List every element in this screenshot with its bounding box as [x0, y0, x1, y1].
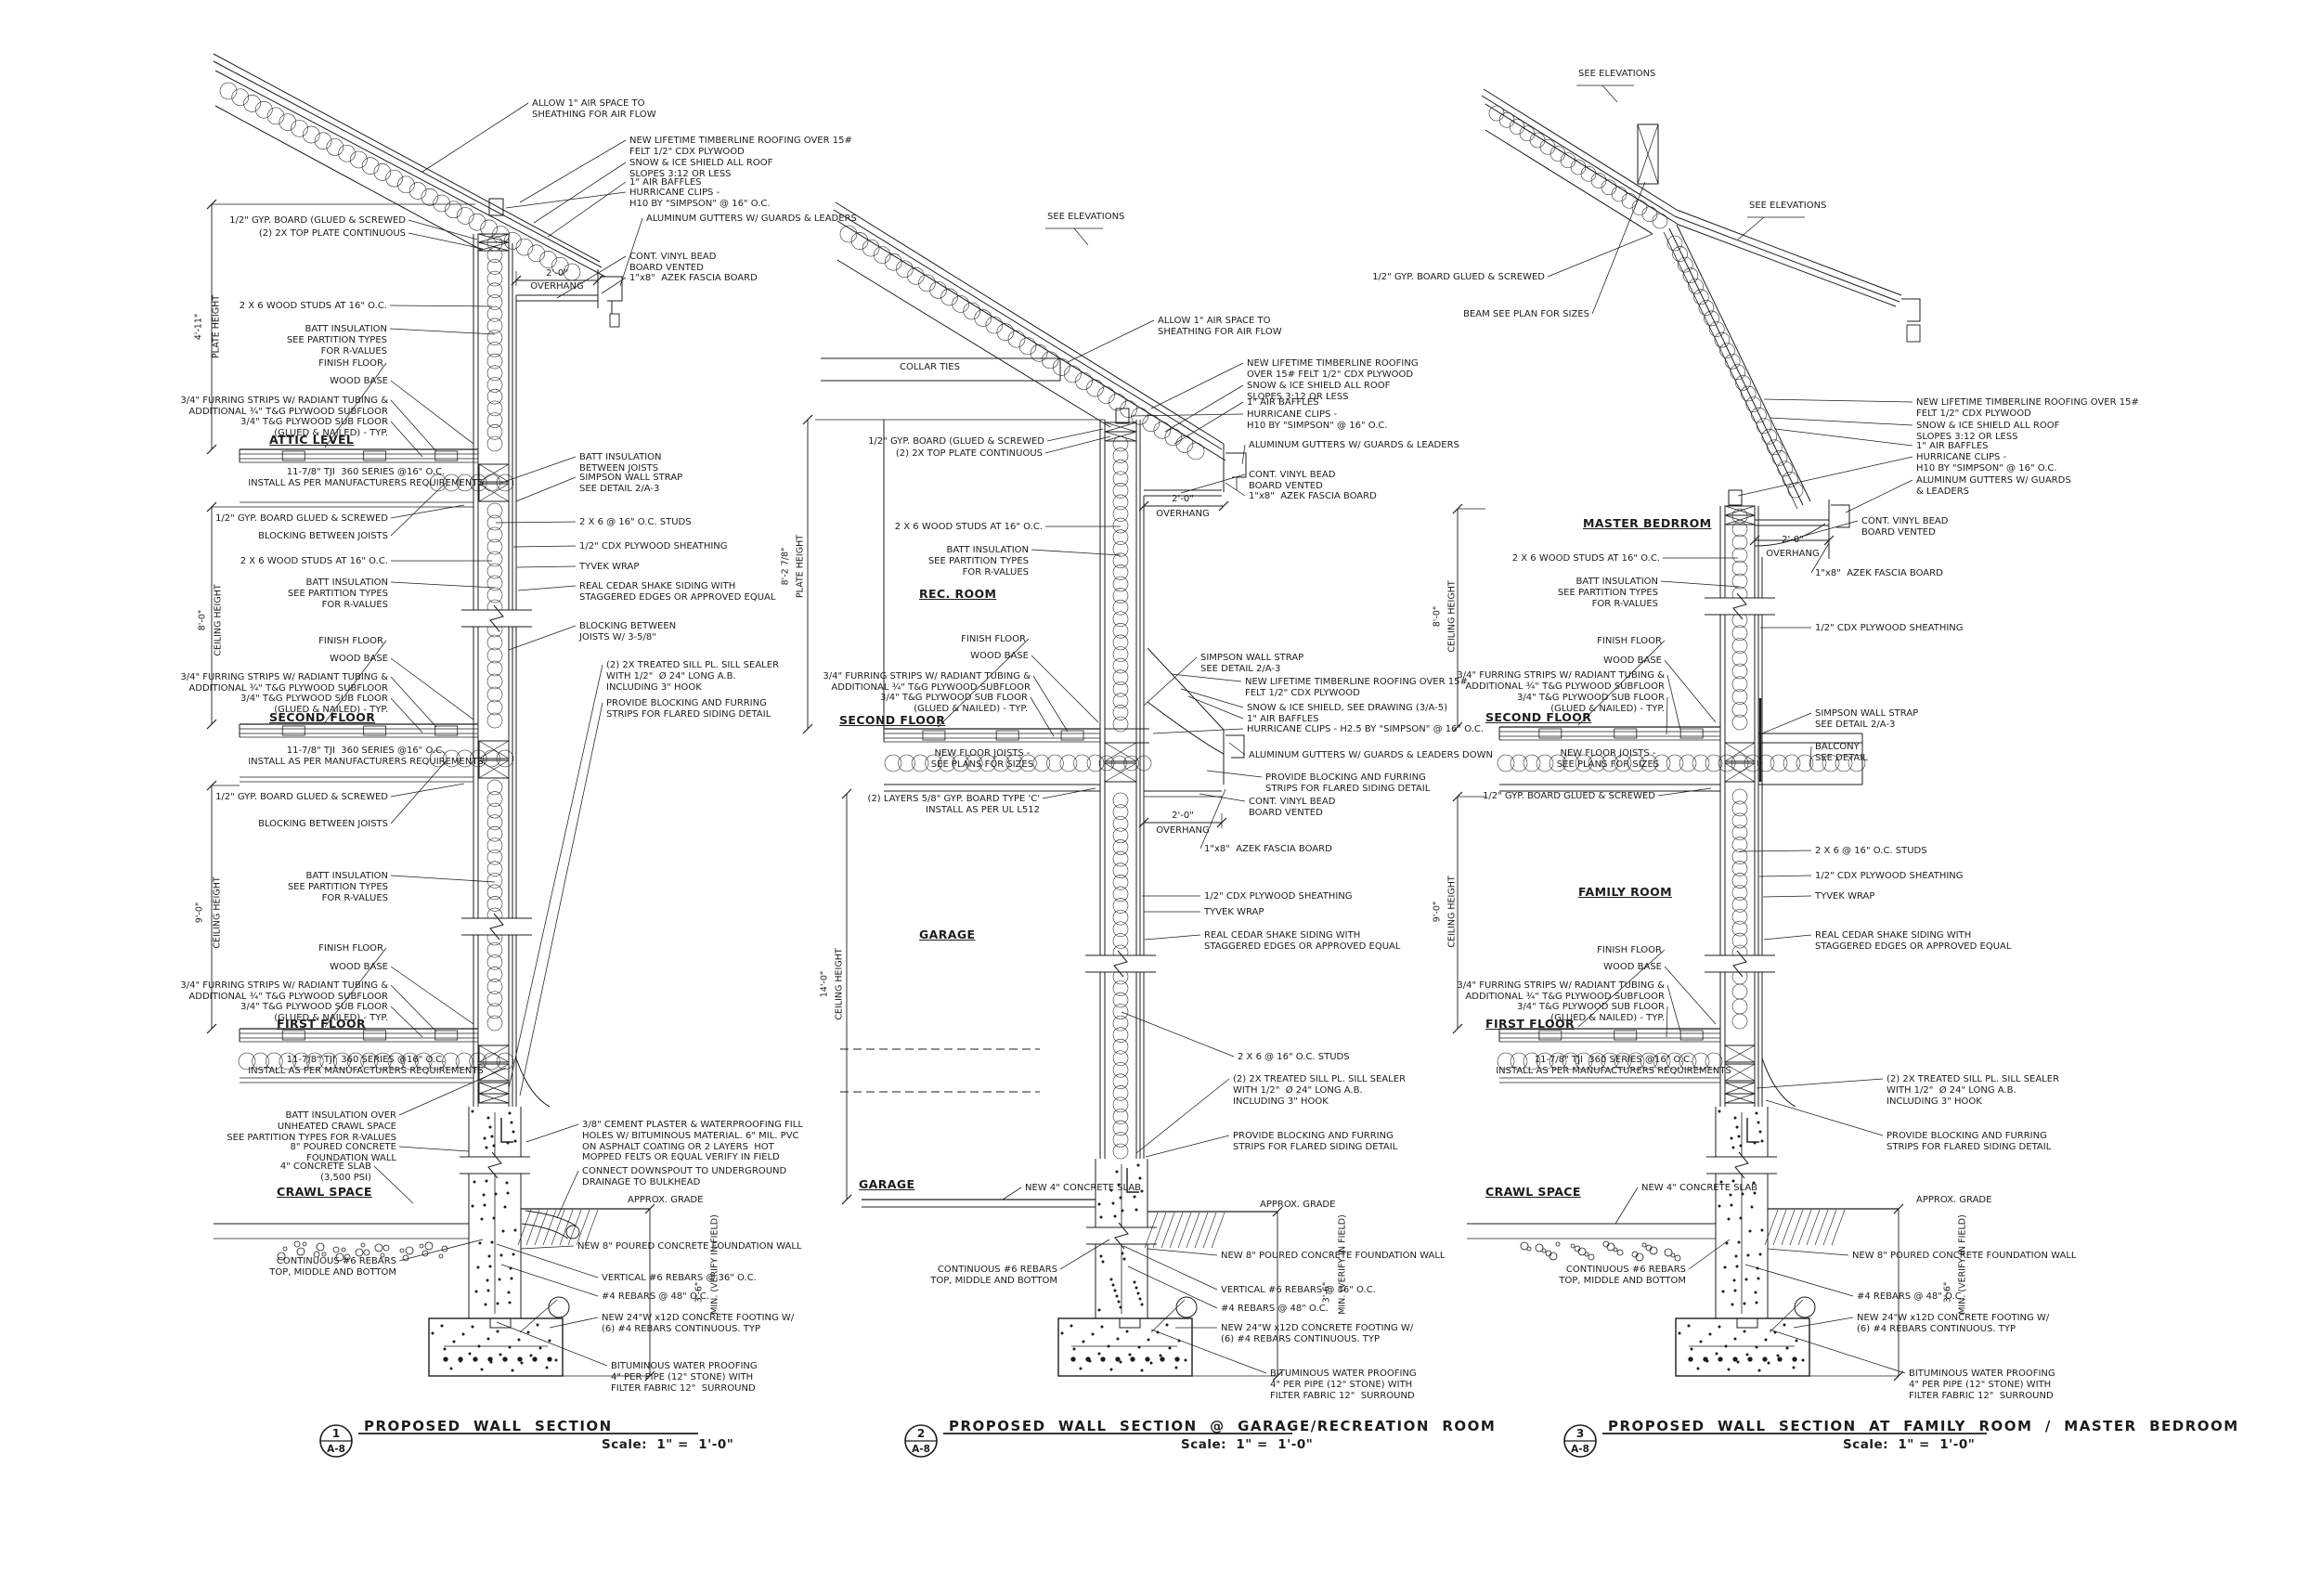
annotation-label: OVERHANG: [1156, 825, 1209, 837]
annotation-label: 1/2" CDX PLYWOOD SHEATHING: [1815, 623, 1964, 634]
annotation-label: 8'-2 7/8": [780, 548, 790, 586]
annotation-label: NEW 8" POURED CONCRETE FOUNDATION WALL: [577, 1241, 801, 1252]
sheet-number: A-8: [1571, 1444, 1589, 1455]
annotation-label: NEW 4" CONCRETE SLAB: [1025, 1183, 1141, 1194]
annotation-label: OVERHANG: [1156, 509, 1209, 520]
room-label: FIRST FLOOR: [277, 1018, 366, 1032]
detail-number: 2: [917, 1427, 925, 1440]
annotation-label: WOOD BASE: [1603, 962, 1662, 973]
annotation-label: OVERHANG: [1766, 549, 1819, 560]
annotation-label: PLATE HEIGHT: [211, 295, 221, 358]
annotation-label: 1/2" CDX PLYWOOD SHEATHING: [1815, 871, 1964, 882]
annotation-label: WOOD BASE: [970, 651, 1029, 662]
annotation-label: APPROX. GRADE: [1260, 1200, 1335, 1211]
annotation-label: NEW 24"W x12D CONCRETE FOOTING W/ (6) #4…: [1221, 1323, 1413, 1345]
room-label: CRAWL SPACE: [277, 1186, 372, 1200]
room-label: SECOND FLOOR: [269, 711, 375, 725]
annotation-label: 1" AIR BAFFLES: [1247, 397, 1319, 409]
annotation-label: CEILING HEIGHT: [834, 948, 844, 1019]
annotation-label: BATT INSULATION SEE PARTITION TYPES FOR …: [1558, 577, 1658, 609]
annotation-label: HURRICANE CLIPS - H10 BY "SIMPSON" @ 16"…: [1247, 409, 1388, 432]
annotation-label: 1/2" GYP. BOARD GLUED & SCREWED: [1483, 791, 1655, 802]
annotation-label: REAL CEDAR SHAKE SIDING WITH STAGGERED E…: [1204, 930, 1400, 953]
annotation-label: CONT. VINYL BEAD BOARD VENTED: [1249, 797, 1335, 819]
annotation-label: 2'-0": [1172, 811, 1194, 822]
annotation-label: (2) 2X TREATED SILL PL. SILL SEALER WITH…: [1887, 1074, 2059, 1107]
annotation-label: PROVIDE BLOCKING AND FURRING STRIPS FOR …: [606, 698, 771, 720]
annotation-label: NEW 4" CONCRETE SLAB: [1641, 1183, 1757, 1194]
room-label: SECOND FLOOR: [1485, 711, 1591, 725]
annotation-label: SIMPSON WALL STRAP SEE DETAIL 2/A-3: [579, 473, 682, 495]
annotation-label: NEW 24"W x12D CONCRETE FOOTING W/ (6) #4…: [602, 1313, 794, 1335]
sheet-number: A-8: [327, 1444, 345, 1455]
annotation-label: WOOD BASE: [330, 962, 388, 973]
annotation-label: CONTINUOUS #6 REBARS TOP, MIDDLE AND BOT…: [269, 1256, 396, 1278]
annotation-label: BITUMINOUS WATER PROOFING 4" PER PIPE (1…: [611, 1361, 758, 1394]
annotation-label: WOOD BASE: [330, 654, 388, 665]
annotation-label: OVERHANG: [530, 281, 583, 292]
annotation-label: COLLAR TIES: [900, 362, 960, 373]
annotation-label: ALUMINUM GUTTERS W/ GUARDS & LEADERS: [646, 214, 857, 225]
annotation-label: ALUMINUM GUTTERS W/ GUARDS & LEADERS: [1916, 475, 2071, 498]
annotation-label: BITUMINOUS WATER PROOFING 4" PER PIPE (1…: [1270, 1369, 1417, 1401]
annotation-label: 3/4" FURRING STRIPS W/ RADIANT TUBING & …: [180, 672, 388, 694]
room-label: CRAWL SPACE: [1485, 1186, 1581, 1200]
annotation-label: (2) LAYERS 5/8" GYP. BOARD TYPE 'C' INST…: [868, 794, 1040, 816]
annotation-label: PROVIDE BLOCKING AND FURRING STRIPS FOR …: [1265, 772, 1430, 795]
section-scale: Scale: 1" = 1'-0": [1843, 1437, 1975, 1452]
annotation-label: ALLOW 1" AIR SPACE TO SHEATHING FOR AIR …: [1158, 316, 1282, 338]
annotation-label: APPROX. GRADE: [628, 1195, 703, 1206]
annotation-label: CEILING HEIGHT: [1446, 580, 1457, 652]
annotation-label: 3'-6": [1942, 1282, 1952, 1304]
annotation-label: (2) 2X TREATED SILL PL. SILL SEALER WITH…: [606, 660, 779, 693]
annotation-label: ALUMINUM GUTTERS W/ GUARDS & LEADERS: [1249, 440, 1459, 451]
annotation-label: SNOW & ICE SHIELD, SEE DRAWING (3/A-5): [1247, 703, 1447, 714]
annotation-label: BATT INSULATION SEE PARTITION TYPES FOR …: [287, 324, 387, 357]
room-label: MASTER BEDRROM: [1583, 517, 1712, 531]
annotation-label: ALLOW 1" AIR SPACE TO SHEATHING FOR AIR …: [532, 98, 656, 121]
annotation-label: APPROX. GRADE: [1916, 1195, 1991, 1206]
room-label: REC. ROOM: [919, 588, 996, 602]
annotation-label: NEW LIFETIME TIMBERLINE ROOFING OVER 15#…: [629, 136, 852, 158]
room-label: GARAGE: [919, 928, 975, 942]
annotation-label: 1/2" CDX PLYWOOD SHEATHING: [1204, 891, 1353, 902]
annotation-label: 2 X 6 @ 16" O.C. STUDS: [1815, 846, 1927, 857]
annotation-label: 2 X 6 WOOD STUDS AT 16" O.C.: [895, 522, 1043, 533]
annotation-label: 2'-0": [1172, 494, 1194, 505]
annotation-label: 3/4" FURRING STRIPS W/ RADIANT TUBING & …: [823, 671, 1031, 694]
annotation-label: 1"x8" AZEK FASCIA BOARD: [1204, 844, 1332, 855]
annotation-label: CONT. VINYL BEAD BOARD VENTED: [629, 252, 716, 274]
annotation-label: FINISH FLOOR: [318, 358, 383, 370]
annotation-label: 1/2" GYP. BOARD (GLUED & SCREWED: [229, 215, 406, 227]
annotation-label: 4" CONCRETE SLAB (3,500 PSI): [280, 1161, 371, 1184]
annotation-label: BALCONY SEE DETAIL: [1815, 742, 1868, 764]
annotation-label: BATT INSULATION SEE PARTITION TYPES FOR …: [288, 871, 388, 903]
room-label: GARAGE: [859, 1178, 914, 1192]
annotation-label: 4'-11": [193, 314, 203, 341]
annotation-label: 3/8" CEMENT PLASTER & WATERPROOFING FILL…: [582, 1120, 803, 1163]
annotation-label: CONT. VINYL BEAD BOARD VENTED: [1249, 470, 1335, 492]
detail-number: 1: [332, 1427, 340, 1440]
annotation-label: BLOCKING BETWEEN JOISTS W/ 3-5/8": [579, 621, 676, 643]
annotation-label: 9'-0": [1432, 902, 1442, 923]
detail-number: 3: [1576, 1427, 1584, 1440]
annotation-label: 3/4" T&G PLYWOOD SUB FLOOR (GLUED & NAIL…: [880, 693, 1028, 715]
annotation-label: BITUMINOUS WATER PROOFING 4" PER PIPE (1…: [1909, 1369, 2055, 1401]
annotation-label: VERTICAL #6 REBARS @ 36" O.C.: [602, 1273, 757, 1284]
annotation-label: 2'-0": [1782, 535, 1804, 546]
annotation-label: 1/2" GYP. BOARD GLUED & SCREWED: [215, 513, 388, 525]
annotation-label: 8'-0": [197, 610, 207, 631]
annotation-label: BLOCKING BETWEEN JOISTS: [258, 531, 388, 542]
annotation-label: 2 X 6 @ 16" O.C. STUDS: [1238, 1052, 1350, 1063]
annotation-label: PLATE HEIGHT: [795, 535, 805, 598]
room-label: FAMILY ROOM: [1578, 886, 1672, 900]
annotation-label: 11-7/8" TJI 360 SERIES @16" O.C. INSTALL…: [248, 467, 484, 489]
annotation-label: SNOW & ICE SHIELD ALL ROOF SLOPES 3:12 O…: [1916, 421, 2059, 443]
annotation-label: 14'-0": [819, 971, 829, 998]
annotation-label: 1" AIR BAFFLES: [1916, 441, 1989, 452]
annotation-label: NEW 8" POURED CONCRETE FOUNDATION WALL: [1221, 1251, 1445, 1262]
annotation-label: 2 X 6 WOOD STUDS AT 16" O.C.: [1512, 553, 1660, 564]
annotation-label: PROVIDE BLOCKING AND FURRING STRIPS FOR …: [1233, 1131, 1397, 1153]
annotation-label: 1/2" GYP. BOARD GLUED & SCREWED: [1372, 272, 1545, 283]
annotation-label: NEW LIFETIME TIMBERLINE ROOFING OVER 15#…: [1245, 677, 1468, 699]
section-title: PROPOSED WALL SECTION AT FAMILY ROOM / M…: [1608, 1418, 2239, 1434]
annotation-label: FINISH FLOOR: [1597, 945, 1662, 956]
section-scale: Scale: 1" = 1'-0": [1181, 1437, 1313, 1452]
annotation-label: (2) 2X TOP PLATE CONTINUOUS: [896, 448, 1043, 460]
annotation-label: WOOD BASE: [1603, 655, 1662, 667]
annotation-label: BATT INSULATION BETWEEN JOISTS: [579, 452, 662, 474]
section-scale: Scale: 1" = 1'-0": [602, 1437, 733, 1452]
section-title: PROPOSED WALL SECTION: [364, 1418, 613, 1434]
annotation-label: 3/4" FURRING STRIPS W/ RADIANT TUBING & …: [180, 396, 388, 418]
annotation-label: 3/4" FURRING STRIPS W/ RADIANT TUBING & …: [1457, 980, 1665, 1003]
annotation-label: 1"x8" AZEK FASCIA BOARD: [1249, 491, 1377, 502]
annotation-label: SIMPSON WALL STRAP SEE DETAIL 2/A-3: [1815, 708, 1918, 731]
annotation-label: 11-7/8" TJI 360 SERIES @16" O.C. INSTALL…: [248, 1055, 484, 1077]
annotation-label: FINISH FLOOR: [318, 636, 383, 647]
annotation-label: VERTICAL #6 REBARS @ 36" O.C.: [1221, 1285, 1376, 1296]
annotation-label: NEW 24"W x12D CONCRETE FOOTING W/ (6) #4…: [1857, 1313, 2049, 1335]
annotation-label: 1/2" CDX PLYWOOD SHEATHING: [579, 541, 728, 552]
annotation-label: BATT INSULATION SEE PARTITION TYPES FOR …: [288, 577, 388, 610]
annotation-label: REAL CEDAR SHAKE SIDING WITH STAGGERED E…: [1815, 930, 2011, 953]
annotation-label: HURRICANE CLIPS - H2.5 BY "SIMPSON" @ 16…: [1247, 724, 1484, 735]
annotation-label: 3'-6": [1321, 1282, 1331, 1304]
annotation-label: TYVEK WRAP: [579, 562, 639, 573]
annotation-label: TYVEK WRAP: [1815, 891, 1874, 902]
annotation-label: 8'-0": [1432, 606, 1442, 628]
section-title: PROPOSED WALL SECTION @ GARAGE/RECREATIO…: [949, 1418, 1496, 1434]
annotation-label: SEE ELEVATIONS: [1749, 201, 1826, 212]
annotation-label: 2 X 6 WOOD STUDS AT 16" O.C.: [240, 556, 388, 567]
annotation-label: 3/4" FURRING STRIPS W/ RADIANT TUBING & …: [1457, 670, 1665, 693]
room-label: SECOND FLOOR: [839, 714, 945, 728]
annotation-label: CEILING HEIGHT: [212, 876, 222, 948]
sheet-number: A-8: [912, 1444, 930, 1455]
annotation-label: 2'-0": [546, 268, 568, 279]
annotation-label: 1"x8" AZEK FASCIA BOARD: [629, 273, 758, 284]
annotation-label: CONNECT DOWNSPOUT TO UNDERGROUND DRAINAG…: [582, 1166, 786, 1188]
annotation-label: (2) 2X TOP PLATE CONTINUOUS: [259, 228, 406, 240]
room-label: ATTIC LEVEL: [269, 434, 354, 448]
annotation-label: NEW FLOOR JOISTS - SEE PLANS FOR SIZES: [931, 748, 1033, 771]
annotation-label: 11-7/8" TJI 360 SERIES @16" O.C. INSTALL…: [248, 746, 484, 768]
wall-section-sheet: 1/2" GYP. BOARD (GLUED & SCREWED(2) 2X T…: [0, 0, 2321, 1596]
annotation-label: NEW FLOOR JOISTS - SEE PLANS FOR SIZES: [1557, 748, 1659, 771]
annotation-label: TYVEK WRAP: [1204, 907, 1264, 918]
room-label: FIRST FLOOR: [1485, 1018, 1575, 1032]
annotation-label: HURRICANE CLIPS - H10 BY "SIMPSON" @ 16"…: [629, 188, 771, 210]
annotation-label: NEW LIFETIME TIMBERLINE ROOFING OVER 15#…: [1247, 358, 1419, 381]
annotation-label: ALUMINUM GUTTERS W/ GUARDS & LEADERS DOW…: [1249, 750, 1493, 761]
annotation-label: 3'-6": [694, 1282, 704, 1304]
annotation-label: 1/2" GYP. BOARD (GLUED & SCREWED: [868, 436, 1044, 448]
annotation-label: HURRICANE CLIPS - H10 BY "SIMPSON" @ 16"…: [1916, 452, 2057, 474]
annotation-label: BATT INSULATION OVER UNHEATED CRAWL SPAC…: [227, 1110, 396, 1143]
annotation-label: 2 X 6 WOOD STUDS AT 16" O.C.: [240, 301, 387, 312]
annotation-label: FINISH FLOOR: [318, 943, 383, 954]
annotation-label: (2) 2X TREATED SILL PL. SILL SEALER WITH…: [1233, 1074, 1406, 1107]
annotation-label: 11-7/8" TJI 360 SERIES @16" O.C. INSTALL…: [1496, 1055, 1731, 1077]
annotation-label: 2 X 6 @ 16" O.C. STUDS: [579, 517, 692, 528]
annotation-label: BATT INSULATION SEE PARTITION TYPES FOR …: [928, 545, 1029, 577]
annotation-label: WOOD BASE: [330, 376, 388, 387]
annotation-label: 9'-0": [194, 902, 204, 924]
annotation-label: MIN. (VERIFY IN FIELD): [709, 1214, 720, 1315]
annotation-label: NEW LIFETIME TIMBERLINE ROOFING OVER 15#…: [1916, 397, 2139, 420]
annotation-label: #4 REBARS @ 48" O.C.: [1221, 1304, 1329, 1315]
annotation-label: 1/2" GYP. BOARD GLUED & SCREWED: [215, 792, 388, 803]
annotation-label: FINISH FLOOR: [961, 634, 1026, 645]
annotation-label: PROVIDE BLOCKING AND FURRING STRIPS FOR …: [1887, 1131, 2051, 1153]
annotation-label: BEAM SEE PLAN FOR SIZES: [1463, 309, 1589, 320]
annotation-label: BLOCKING BETWEEN JOISTS: [258, 819, 388, 830]
annotation-label: MIN. (VERIFY IN FIELD): [1957, 1214, 1967, 1315]
annotation-label: REAL CEDAR SHAKE SIDING WITH STAGGERED E…: [579, 581, 775, 603]
annotation-label: CONTINUOUS #6 REBARS TOP, MIDDLE AND BOT…: [930, 1265, 1057, 1287]
annotation-label: 1"x8" AZEK FASCIA BOARD: [1815, 568, 1943, 579]
annotation-label: CEILING HEIGHT: [1446, 876, 1457, 947]
annotation-label: CONT. VINYL BEAD BOARD VENTED: [1861, 516, 1948, 538]
annotation-label: MIN. (VERIFY IN FIELD): [1337, 1214, 1347, 1315]
annotation-label: CEILING HEIGHT: [213, 584, 223, 655]
annotation-label: SEE ELEVATIONS: [1047, 212, 1124, 223]
annotation-label: SIMPSON WALL STRAP SEE DETAIL 2/A-3: [1200, 653, 1303, 675]
annotation-label: 3/4" FURRING STRIPS W/ RADIANT TUBING & …: [180, 980, 388, 1003]
annotation-label: FINISH FLOOR: [1597, 636, 1662, 647]
annotation-label: CONTINUOUS #6 REBARS TOP, MIDDLE AND BOT…: [1559, 1265, 1686, 1287]
annotation-label: SEE ELEVATIONS: [1578, 69, 1655, 80]
